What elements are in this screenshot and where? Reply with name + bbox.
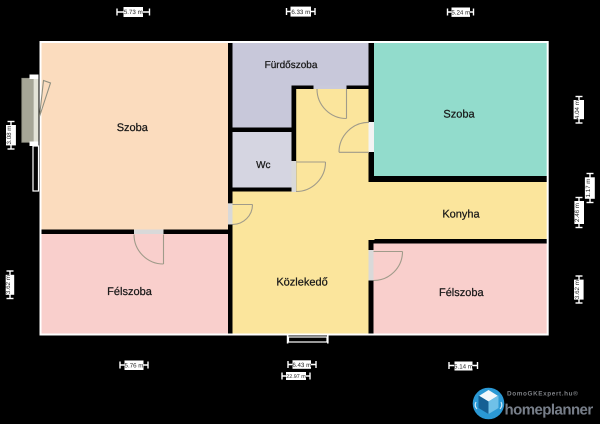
svg-text:Fürdőszoba: Fürdőszoba bbox=[265, 60, 318, 71]
svg-text:5.24 m: 5.24 m bbox=[451, 9, 470, 16]
svg-text:3.08 m: 3.08 m bbox=[6, 126, 13, 145]
svg-text:Félszoba: Félszoba bbox=[107, 286, 153, 298]
svg-text:4.04 m: 4.04 m bbox=[574, 100, 581, 119]
svg-text:homeplanner: homeplanner bbox=[505, 402, 594, 419]
svg-text:Konyha: Konyha bbox=[442, 209, 480, 221]
svg-text:Félszoba: Félszoba bbox=[439, 287, 485, 299]
svg-text:3.62 m: 3.62 m bbox=[574, 280, 581, 299]
svg-text:5.76 m: 5.76 m bbox=[125, 363, 144, 370]
svg-text:1.17 m: 1.17 m bbox=[585, 179, 592, 198]
svg-text:Wc: Wc bbox=[256, 160, 270, 171]
svg-text:5.14 m: 5.14 m bbox=[454, 364, 473, 371]
svg-text:22.97 m: 22.97 m bbox=[286, 374, 306, 380]
svg-text:Szoba: Szoba bbox=[443, 109, 475, 121]
svg-text:Közlekedő: Közlekedő bbox=[276, 276, 327, 288]
svg-text:6.33 m: 6.33 m bbox=[291, 9, 310, 16]
svg-text:DomoGKExpert.hu®: DomoGKExpert.hu® bbox=[507, 391, 578, 398]
svg-text:3.62 m: 3.62 m bbox=[5, 275, 12, 294]
svg-text:5.73 m: 5.73 m bbox=[124, 9, 143, 16]
svg-text:6.43 m: 6.43 m bbox=[292, 362, 311, 369]
svg-text:Szoba: Szoba bbox=[117, 122, 149, 134]
svg-text:2.46 m: 2.46 m bbox=[574, 203, 581, 222]
